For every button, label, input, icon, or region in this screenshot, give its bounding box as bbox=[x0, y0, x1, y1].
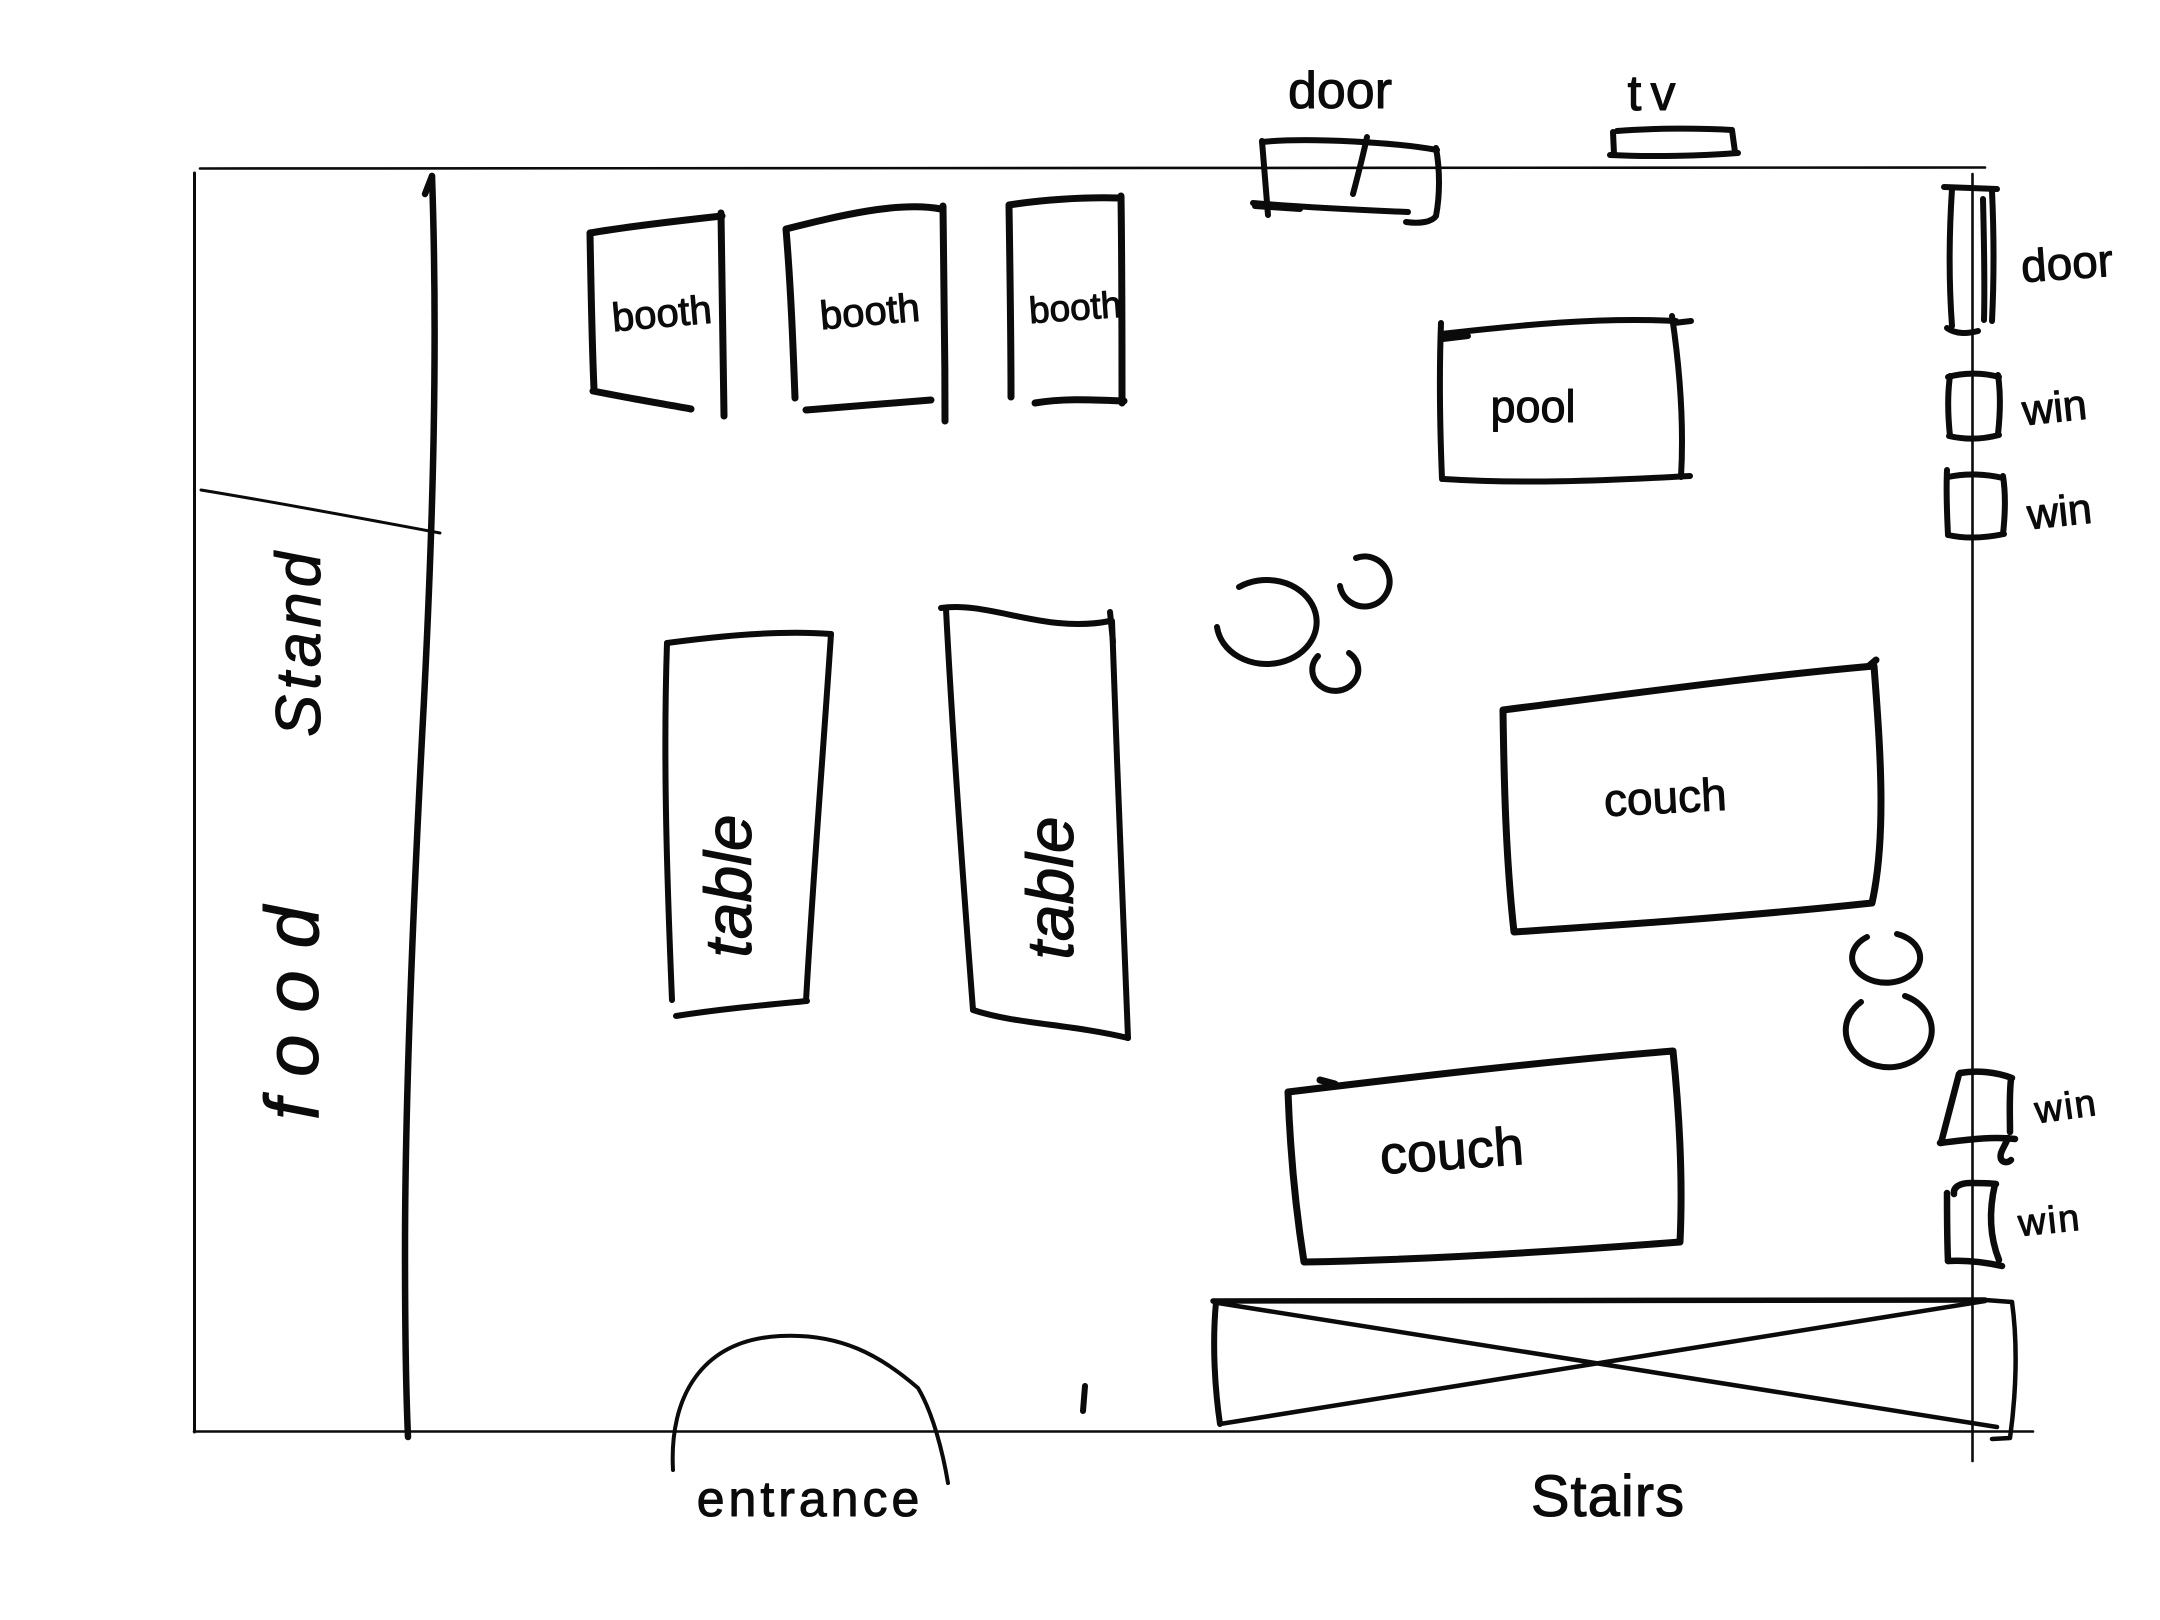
svg-text:Stairs: Stairs bbox=[1531, 1464, 1685, 1529]
svg-text:booth: booth bbox=[818, 286, 922, 339]
svg-text:win: win bbox=[2024, 485, 2094, 540]
svg-text:door: door bbox=[2019, 234, 2114, 292]
svg-text:Stand: Stand bbox=[264, 547, 334, 737]
svg-text:entrance: entrance bbox=[697, 1471, 924, 1527]
svg-text:food: food bbox=[250, 884, 335, 1120]
svg-text:win: win bbox=[2031, 1082, 2100, 1133]
svg-text:couch: couch bbox=[1378, 1116, 1526, 1186]
svg-text:table: table bbox=[691, 814, 765, 957]
svg-text:win: win bbox=[2019, 381, 2089, 436]
svg-text:tv: tv bbox=[1628, 65, 1685, 121]
svg-text:couch: couch bbox=[1603, 768, 1728, 826]
svg-text:win: win bbox=[2015, 1197, 2083, 1245]
svg-text:table: table bbox=[1013, 816, 1087, 959]
svg-text:door: door bbox=[1288, 62, 1392, 120]
svg-text:pool: pool bbox=[1490, 381, 1575, 432]
svg-text:booth: booth bbox=[610, 288, 714, 341]
svg-text:booth: booth bbox=[1028, 284, 1123, 331]
